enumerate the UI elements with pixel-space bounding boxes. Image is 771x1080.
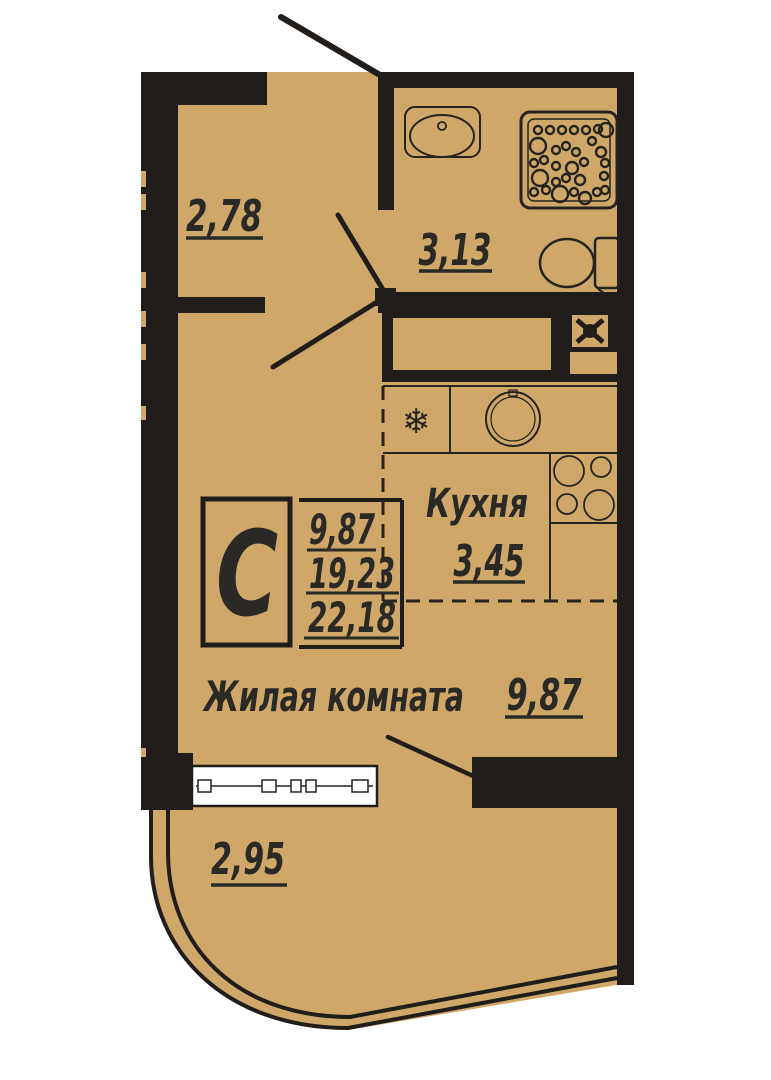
kitchen-label: Кухня xyxy=(426,481,528,527)
living-south-pier xyxy=(141,753,193,810)
top-wall-left xyxy=(141,72,267,105)
kitchen-area: 3,45 xyxy=(454,536,525,587)
living-south-wall xyxy=(472,757,617,808)
stat-total-area: 22,18 xyxy=(308,593,396,642)
entry-door-leaf xyxy=(281,17,380,75)
floor-plan: ❄ С 9,87 19,23 22,18 xyxy=(0,0,771,1080)
living-room-label: Жилая комната xyxy=(202,672,464,721)
hall-south-wall xyxy=(178,297,265,313)
balcony-area: 2,95 xyxy=(211,834,285,885)
vent-niche xyxy=(570,352,617,374)
bathroom-south-wall xyxy=(378,292,634,313)
left-wall xyxy=(141,72,178,810)
living-room-area: 9,87 xyxy=(507,670,582,721)
fridge-icon: ❄ xyxy=(402,402,431,442)
bathroom-left-wall xyxy=(378,88,394,210)
closet-interior xyxy=(393,318,551,370)
hallway-area: 2,78 xyxy=(186,191,262,242)
type-letter: С xyxy=(216,507,278,644)
top-wall-right xyxy=(378,72,634,88)
right-wall xyxy=(617,72,634,985)
stat-living-area: 9,87 xyxy=(309,505,375,554)
floor-plan-drawing: ❄ С 9,87 19,23 22,18 xyxy=(0,0,771,1080)
bathroom-area: 3,13 xyxy=(419,225,492,276)
stat-area-without-balcony: 19,23 xyxy=(309,549,395,598)
balcony-window xyxy=(192,766,377,806)
